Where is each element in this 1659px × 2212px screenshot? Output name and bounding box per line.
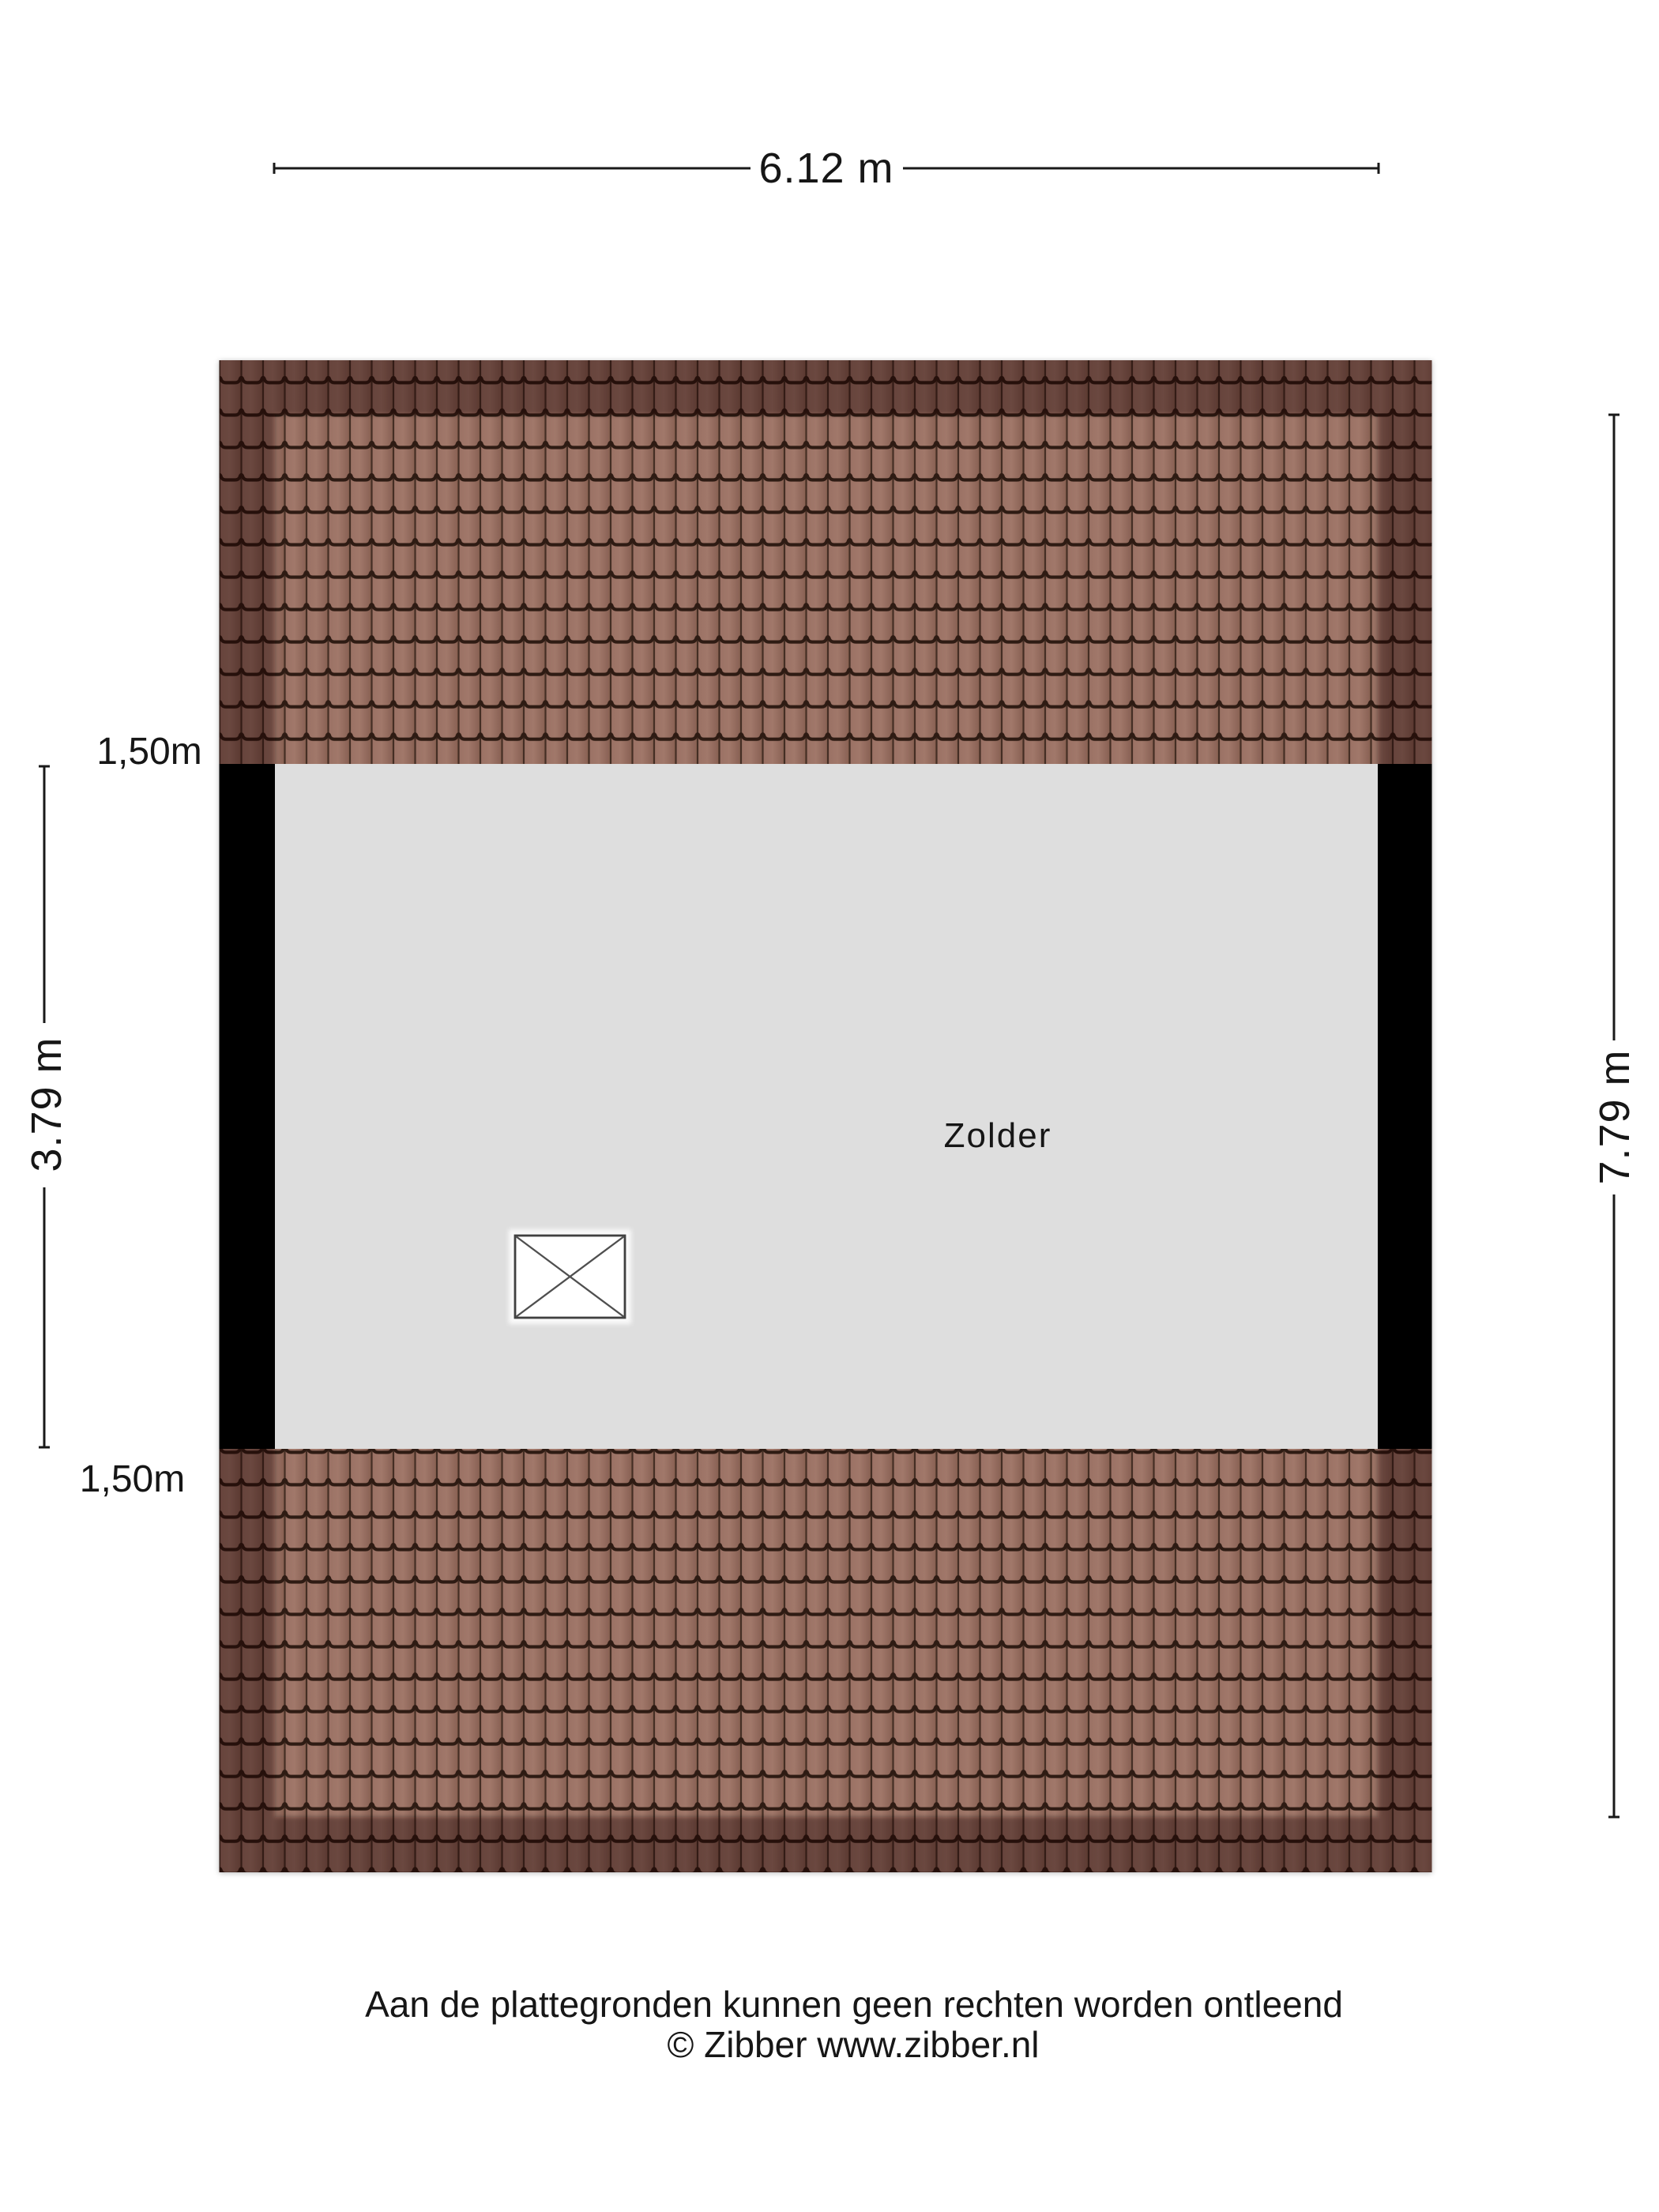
svg-text:6.12 m: 6.12 m: [758, 145, 893, 192]
svg-text:7.79 m: 7.79 m: [1591, 1049, 1638, 1184]
svg-text:Zolder: Zolder: [944, 1116, 1052, 1155]
svg-text:3.79 m: 3.79 m: [23, 1036, 70, 1172]
svg-text:© Zibber www.zibber.nl: © Zibber www.zibber.nl: [667, 2024, 1039, 2065]
svg-text:Aan de plattegronden kunnen ge: Aan de plattegronden kunnen geen rechten…: [365, 1984, 1343, 2025]
svg-text:1,50m: 1,50m: [96, 731, 201, 773]
svg-text:1,50m: 1,50m: [80, 1458, 185, 1500]
